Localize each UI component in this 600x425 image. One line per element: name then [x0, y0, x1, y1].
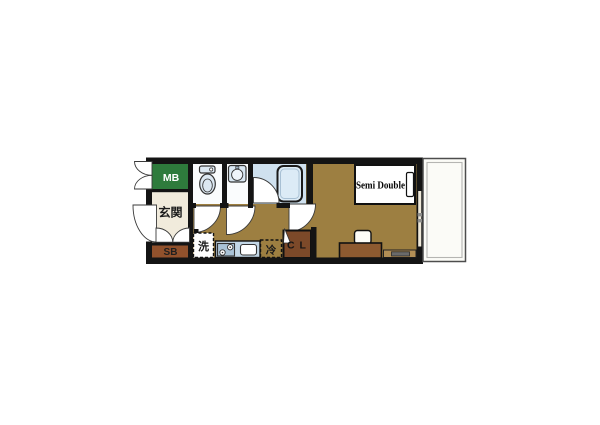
window-icon	[417, 191, 424, 247]
wall-segment	[277, 203, 291, 208]
washer-label: 洗	[198, 239, 209, 253]
meter-box-door-arc-icon	[135, 162, 153, 176]
wall-segment	[417, 247, 424, 265]
chair-icon	[355, 231, 372, 245]
bathtub-icon	[278, 166, 303, 202]
wall-segment	[222, 158, 227, 209]
entrance-label: 玄関	[158, 205, 182, 220]
bed: Semi Double	[355, 165, 415, 204]
meter-box-door-arc-icon	[135, 175, 153, 189]
wall-segment	[188, 158, 193, 265]
wall-segment	[152, 189, 190, 192]
wall-segment	[146, 189, 152, 206]
meter-box-label: MB	[163, 172, 180, 184]
entrance-door-arc-icon	[133, 205, 157, 242]
desk-icon	[340, 243, 382, 258]
tv-board	[384, 250, 417, 258]
washbasin-icon	[229, 166, 247, 183]
toilet-icon	[200, 166, 216, 194]
refrigerator-label: 冷	[266, 244, 277, 257]
bed-label: Semi Double	[356, 181, 405, 192]
wall-segment	[311, 227, 317, 258]
wall-segment	[220, 203, 229, 208]
pillow-icon	[407, 173, 414, 197]
kitchen-sink-icon	[241, 245, 257, 256]
floorplan-image: Semi Double	[0, 0, 600, 425]
kitchen-counter	[216, 241, 261, 258]
shoe-box-label: SB	[164, 247, 178, 258]
closet-label: C L	[287, 240, 307, 252]
wall-segment	[146, 258, 423, 265]
floorplan-canvas: Semi Double	[0, 0, 600, 425]
wall-segment	[248, 158, 253, 209]
wall-segment	[417, 158, 424, 192]
wall-segment	[152, 242, 190, 245]
wall-segment	[307, 158, 314, 205]
wall-segment	[146, 242, 152, 259]
wall-segment	[188, 203, 196, 208]
stove-icon	[218, 244, 235, 257]
tv-icon	[392, 252, 410, 256]
balcony	[423, 159, 466, 262]
wall-segment	[146, 158, 423, 165]
